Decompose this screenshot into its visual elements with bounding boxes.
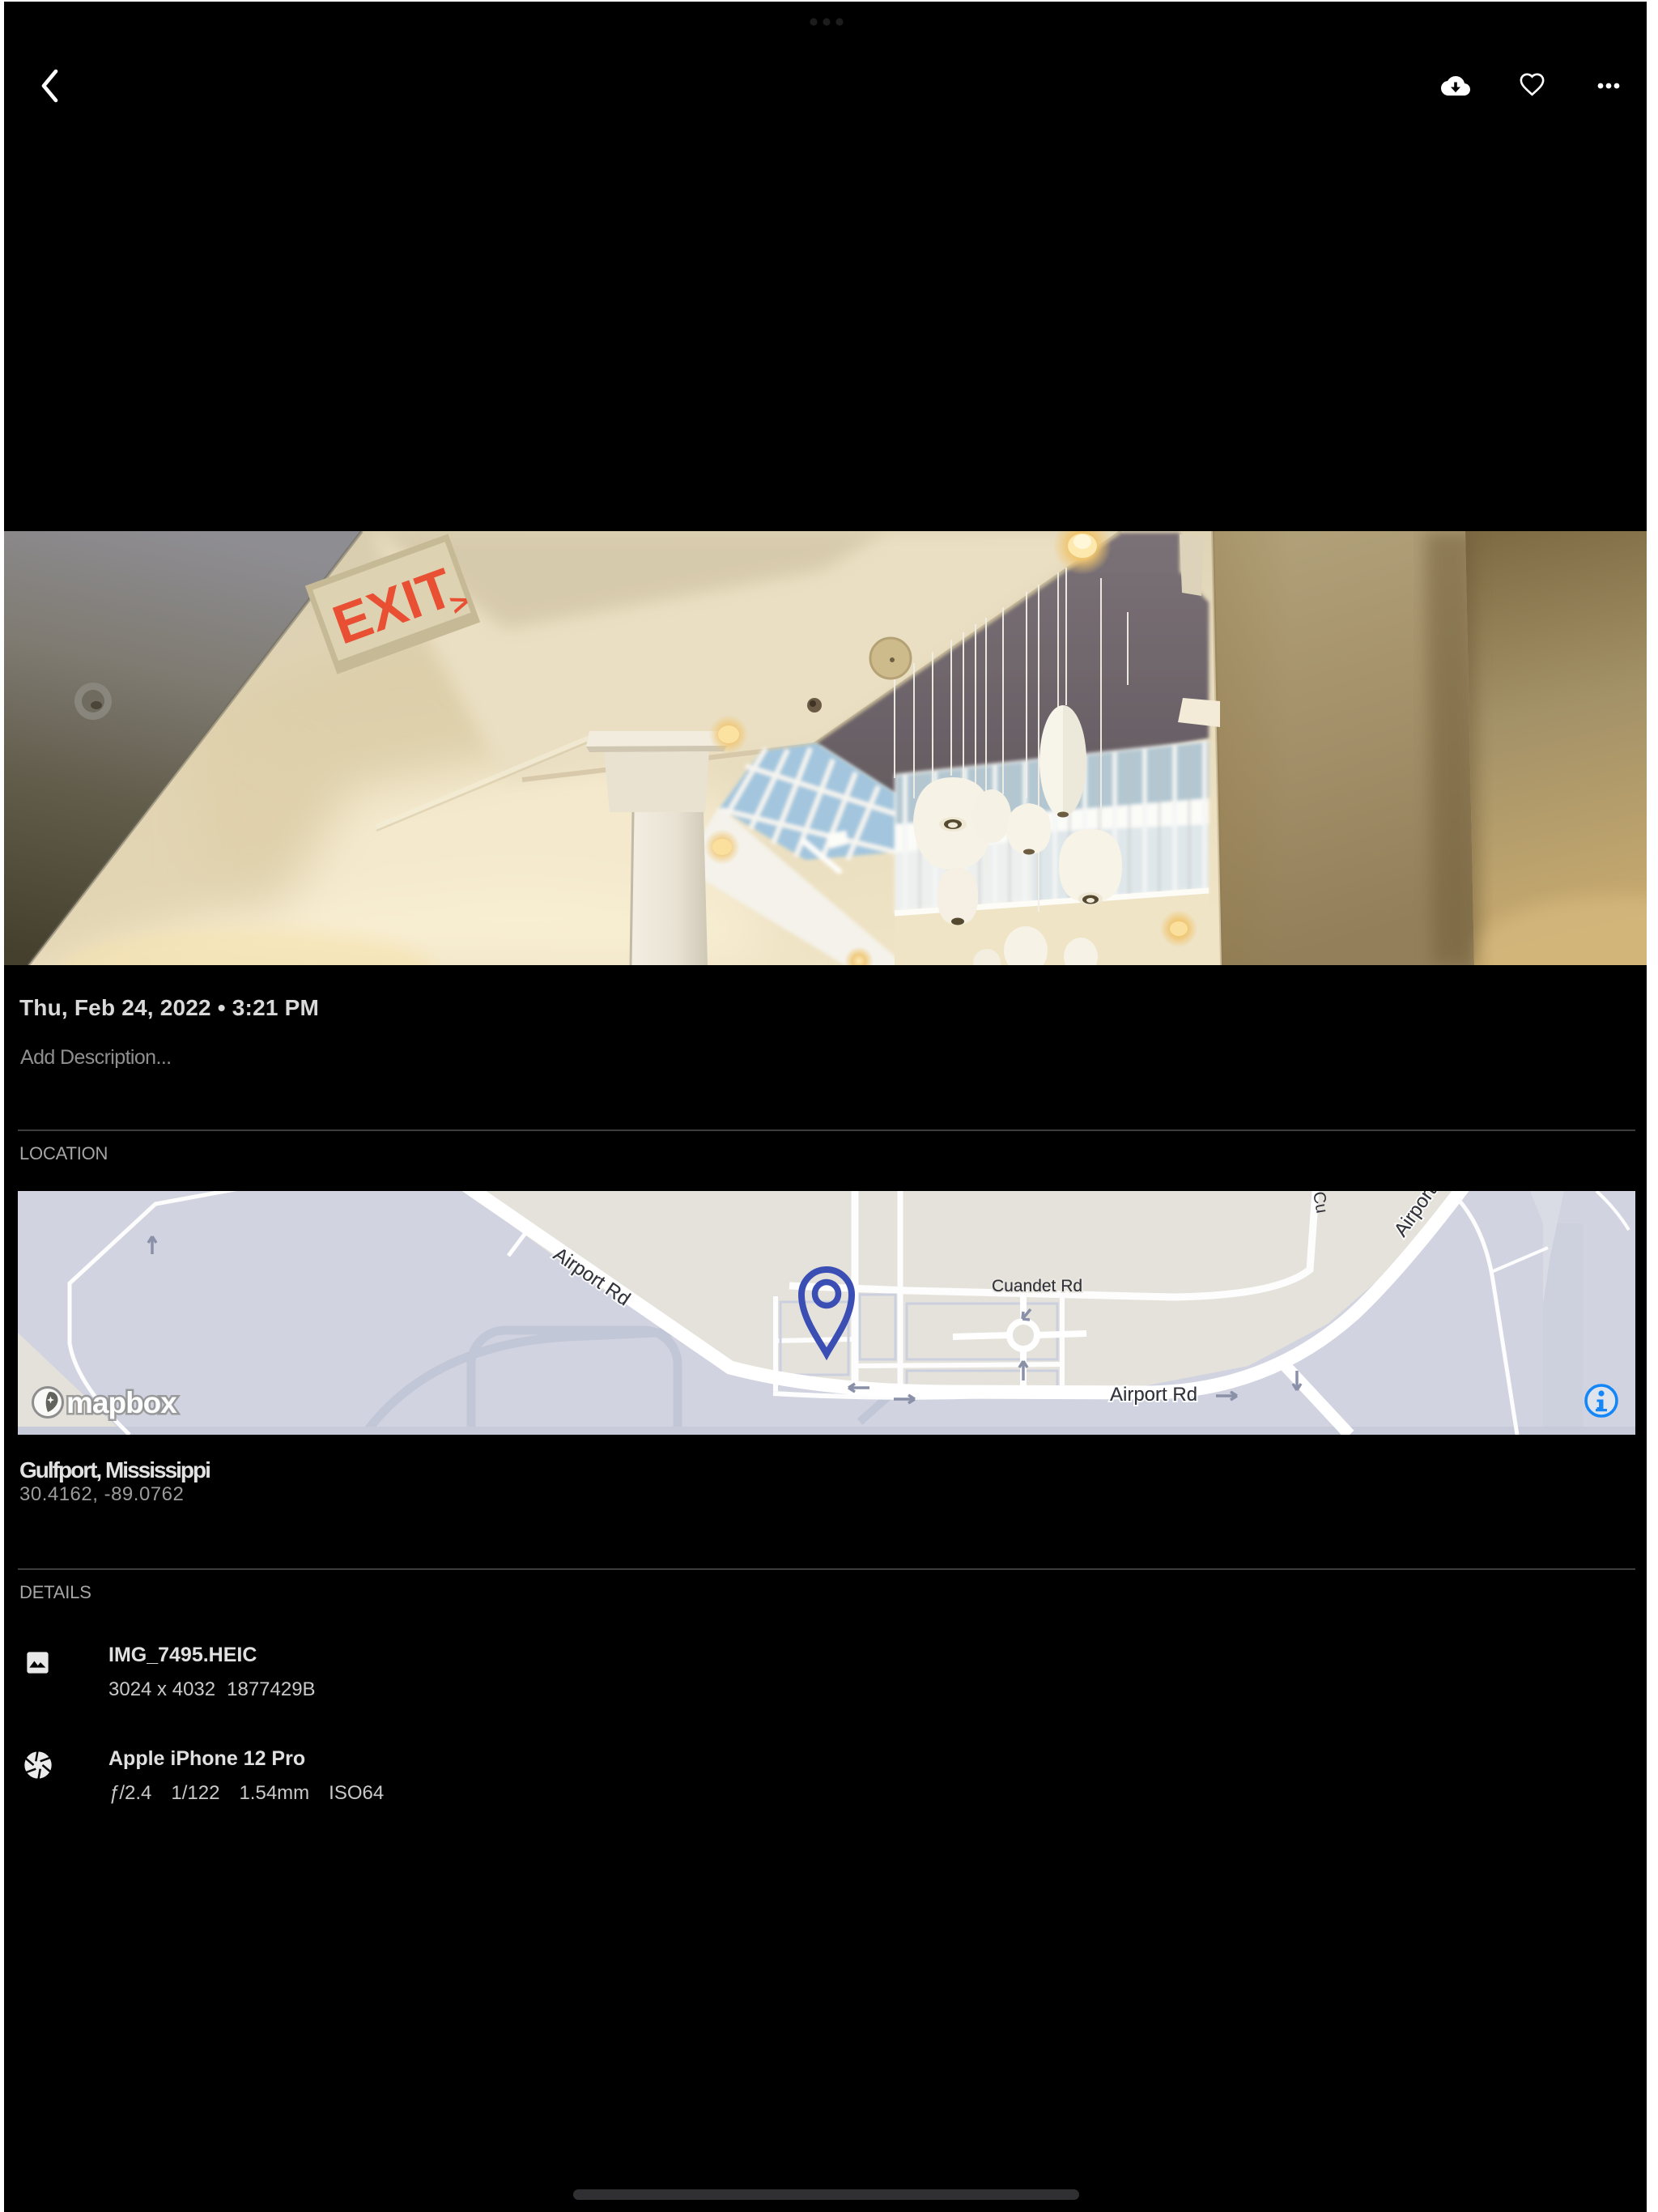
svg-text:mapbox: mapbox [66, 1386, 177, 1419]
svg-text:Airport Rd: Airport Rd [1110, 1384, 1197, 1406]
svg-text:Cu: Cu [1309, 1191, 1331, 1214]
svg-text:Cuandet Rd: Cuandet Rd [992, 1277, 1082, 1295]
